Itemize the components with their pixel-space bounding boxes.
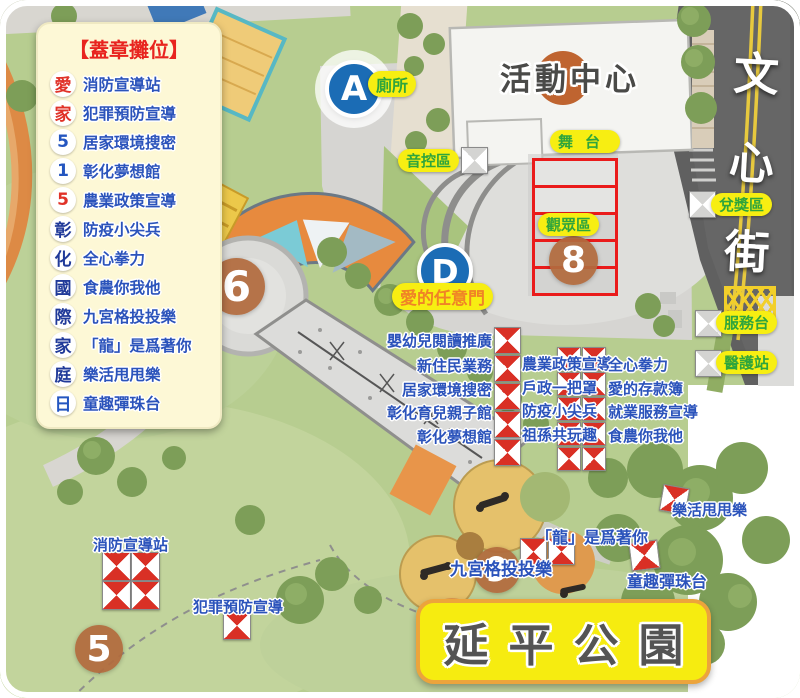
legend-panel: 【蓋章攤位】 愛消防宣導站 家犯罪預防宣導 5居家環境搜密 1彰化夢想館 5農業… (36, 22, 222, 429)
legend-title: 【蓋章攤位】 (38, 34, 220, 63)
marker-5: 5 (75, 625, 123, 673)
legend-item: 愛消防宣導站 (38, 69, 220, 98)
stamp-badge: 1 (50, 158, 76, 184)
legend-item: 1彰化夢想館 (38, 156, 220, 185)
fire-tent-grid (102, 552, 160, 610)
nine-grid-booth-label: 九宮格投投樂 (450, 555, 552, 580)
legend-item-label: 全心拳力 (83, 247, 145, 269)
booth-label: 祖孫共玩趣 (522, 424, 597, 445)
legend-item-label: 消防宣導站 (83, 73, 161, 95)
legend-item-label: 食農你我他 (83, 276, 161, 298)
stamp-badge: 5 (50, 187, 76, 213)
legend-item: 化全心拳力 (38, 243, 220, 272)
legend-item: 彰防疫小尖兵 (38, 214, 220, 243)
booth-label: 嬰幼兒閱讀推廣 (387, 330, 492, 351)
booth-tent-icon (494, 355, 521, 382)
legend-item-label: 九宮格投投樂 (83, 305, 176, 327)
booth-tent-icon (582, 447, 606, 471)
legend-item: 日童趣彈珠台 (38, 388, 220, 417)
love-door-label: 愛的任意門 (392, 283, 493, 310)
stamp-badge: 家 (50, 100, 76, 126)
legend-item: 5居家環境搜密 (38, 127, 220, 156)
legend-item-label: 「龍」是爲著你 (83, 334, 192, 356)
legend-item: 際九宮格投投樂 (38, 301, 220, 330)
medical-station-label: 醫護站 (716, 351, 777, 374)
stamp-badge: 庭 (50, 361, 76, 387)
stage-label: 舞台 (550, 130, 620, 153)
legend-item-label: 童趣彈珠台 (83, 392, 161, 414)
stamp-badge: 日 (50, 390, 76, 416)
swing-booth-label: 樂活甩甩樂 (672, 499, 747, 520)
dragon-booth-label: 「龍」是爲著你 (536, 524, 648, 548)
stamp-badge: 家 (50, 332, 76, 358)
booth-tent-icon (494, 383, 521, 410)
legend-item-label: 居家環境搜密 (83, 131, 176, 153)
legend-item: 家「龍」是爲著你 (38, 330, 220, 359)
booth-label: 防疫小尖兵 (522, 400, 597, 421)
activity-center-label: 活動中心 (470, 54, 670, 99)
park-title-banner: 延平公園 (416, 599, 711, 684)
service-desk-label: 服務台 (716, 311, 777, 334)
legend-item-label: 彰化夢想館 (83, 160, 161, 182)
legend-item-label: 犯罪預防宣導 (83, 102, 176, 124)
tent-column (494, 327, 521, 466)
booth-tent-icon (102, 552, 131, 581)
crime-booth-label: 犯罪預防宣導 (193, 596, 283, 617)
marble-booth-label: 童趣彈珠台 (627, 568, 707, 592)
booth-label: 就業服務宣導 (608, 401, 698, 422)
marker-8: 8 (549, 236, 598, 285)
park-title: 延平公園 (423, 609, 703, 674)
legend-item: 國食農你我他 (38, 272, 220, 301)
stamp-badge: 愛 (50, 71, 76, 97)
booth-label: 愛的存款簿 (608, 378, 683, 399)
booth-tent-icon (557, 447, 581, 471)
booth-label: 農業政策宣導 (522, 353, 612, 374)
audience-label: 觀眾區 (538, 213, 599, 236)
stamp-badge: 國 (50, 274, 76, 300)
booth-label: 食農你我他 (608, 425, 683, 446)
sound-control-label: 音控區 (398, 149, 459, 172)
booth-tent-icon (131, 581, 160, 610)
legend-item: 庭樂活甩甩樂 (38, 359, 220, 388)
booth-tent-icon (131, 552, 160, 581)
booth-tent-icon (494, 439, 521, 466)
booth-label: 新住民業務 (417, 355, 492, 376)
park-event-map: 文心街 活動中心 【蓋章攤位】 愛消防宣導站 家犯罪預防宣導 5居家環境搜密 1… (0, 0, 800, 698)
booth-label: 彰化夢想館 (417, 426, 492, 447)
stamp-badge: 化 (50, 245, 76, 271)
legend-item: 5農業政策宣導 (38, 185, 220, 214)
booth-label: 戶政一把罩 (522, 377, 597, 398)
toilet-label: 廁所 (368, 71, 416, 97)
stamp-badge: 際 (50, 303, 76, 329)
stamp-badge: 彰 (50, 216, 76, 242)
booth-tent-icon (494, 327, 521, 354)
sound-tent-icon (461, 147, 488, 174)
booth-tent-icon (102, 581, 131, 610)
legend-item-label: 農業政策宣導 (83, 189, 176, 211)
booth-label: 居家環境搜密 (402, 379, 492, 400)
fire-booth-label: 消防宣導站 (93, 534, 168, 555)
booth-tent-icon (494, 411, 521, 438)
legend-item: 家犯罪預防宣導 (38, 98, 220, 127)
stamp-badge: 5 (50, 129, 76, 155)
booth-label: 全心拳力 (608, 354, 668, 375)
booth-label: 彰化育兒親子館 (387, 402, 492, 423)
legend-item-label: 防疫小尖兵 (83, 218, 161, 240)
legend-item-label: 樂活甩甩樂 (83, 363, 161, 385)
prize-label: 兌獎區 (711, 193, 772, 216)
